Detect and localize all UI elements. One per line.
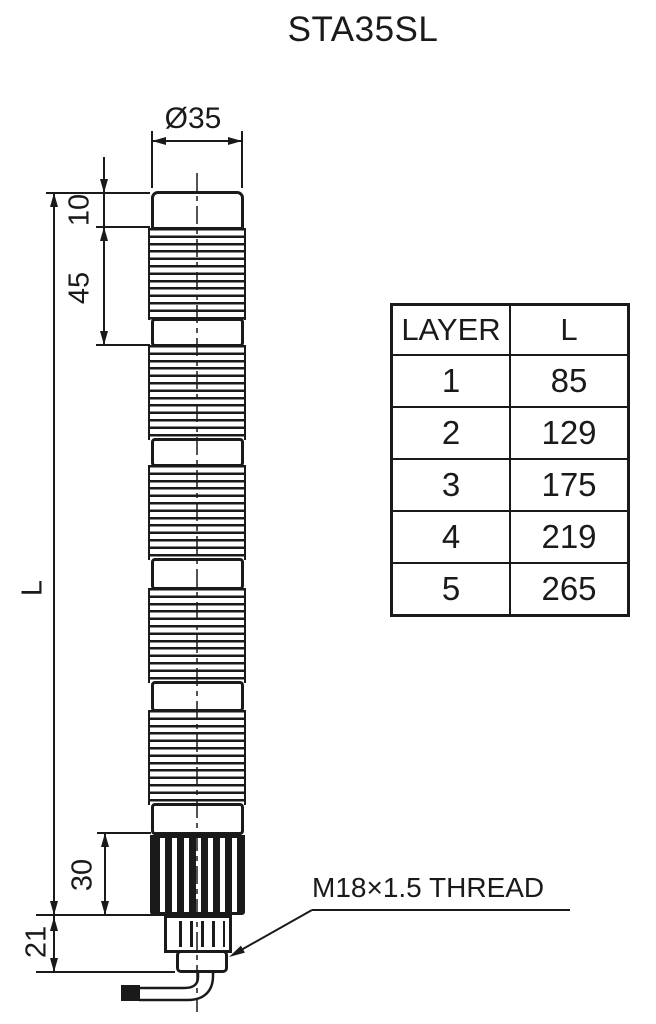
- thread-collar: [176, 950, 228, 973]
- table-row: 5 265: [392, 563, 629, 616]
- page-title: STA35SL: [283, 10, 443, 50]
- mounting-nut-slots: [171, 921, 225, 947]
- cable-tip: [121, 985, 140, 1001]
- tower-lens-section-4: [148, 588, 246, 683]
- tower-band-5: [151, 803, 244, 835]
- table-row: 1 85: [392, 355, 629, 407]
- table-row: 4 219: [392, 511, 629, 563]
- tower-lens-section-2: [148, 345, 246, 440]
- tower-lens-section-5: [148, 710, 246, 805]
- layer-height-dimension-label: 45: [64, 272, 97, 304]
- thread-spec-label: M18×1.5 THREAD: [312, 872, 544, 904]
- length-cell: 85: [510, 355, 629, 407]
- total-length-dimension-label: L: [17, 580, 50, 596]
- tower-band-3: [151, 558, 244, 590]
- base-height-dimension-label: 30: [67, 859, 100, 891]
- diameter-dimension-label: Ø35: [165, 102, 222, 136]
- spec-table-header-layer: LAYER: [392, 305, 511, 356]
- length-cell: 219: [510, 511, 629, 563]
- length-cell: 265: [510, 563, 629, 616]
- tower-band-2: [151, 438, 244, 467]
- length-cell: 129: [510, 407, 629, 459]
- spec-table-header-length: L: [510, 305, 629, 356]
- tower-lens-section-3: [148, 465, 246, 560]
- base-knurl: [150, 835, 245, 915]
- layer-cell: 1: [392, 355, 511, 407]
- tower-lens-section-1: [148, 228, 246, 320]
- tower-band-4: [151, 681, 244, 712]
- spec-table-header-row: LAYER L: [392, 305, 629, 356]
- layer-cell: 4: [392, 511, 511, 563]
- technical-drawing-page: STA35SL: [0, 0, 656, 1024]
- table-row: 2 129: [392, 407, 629, 459]
- layer-cell: 5: [392, 563, 511, 616]
- tower-cap: [151, 191, 244, 230]
- length-cell: 175: [510, 459, 629, 511]
- table-row: 3 175: [392, 459, 629, 511]
- layer-cell: 2: [392, 407, 511, 459]
- cap-height-dimension-label: 10: [64, 194, 97, 226]
- mounting-nut: [164, 915, 232, 953]
- cable-outline: [139, 972, 213, 1000]
- spec-table: LAYER L 1 85 2 129 3 175 4 219 5 265: [390, 303, 630, 617]
- tower-band-1: [151, 318, 244, 347]
- layer-cell: 3: [392, 459, 511, 511]
- thread-length-dimension-label: 21: [21, 926, 54, 958]
